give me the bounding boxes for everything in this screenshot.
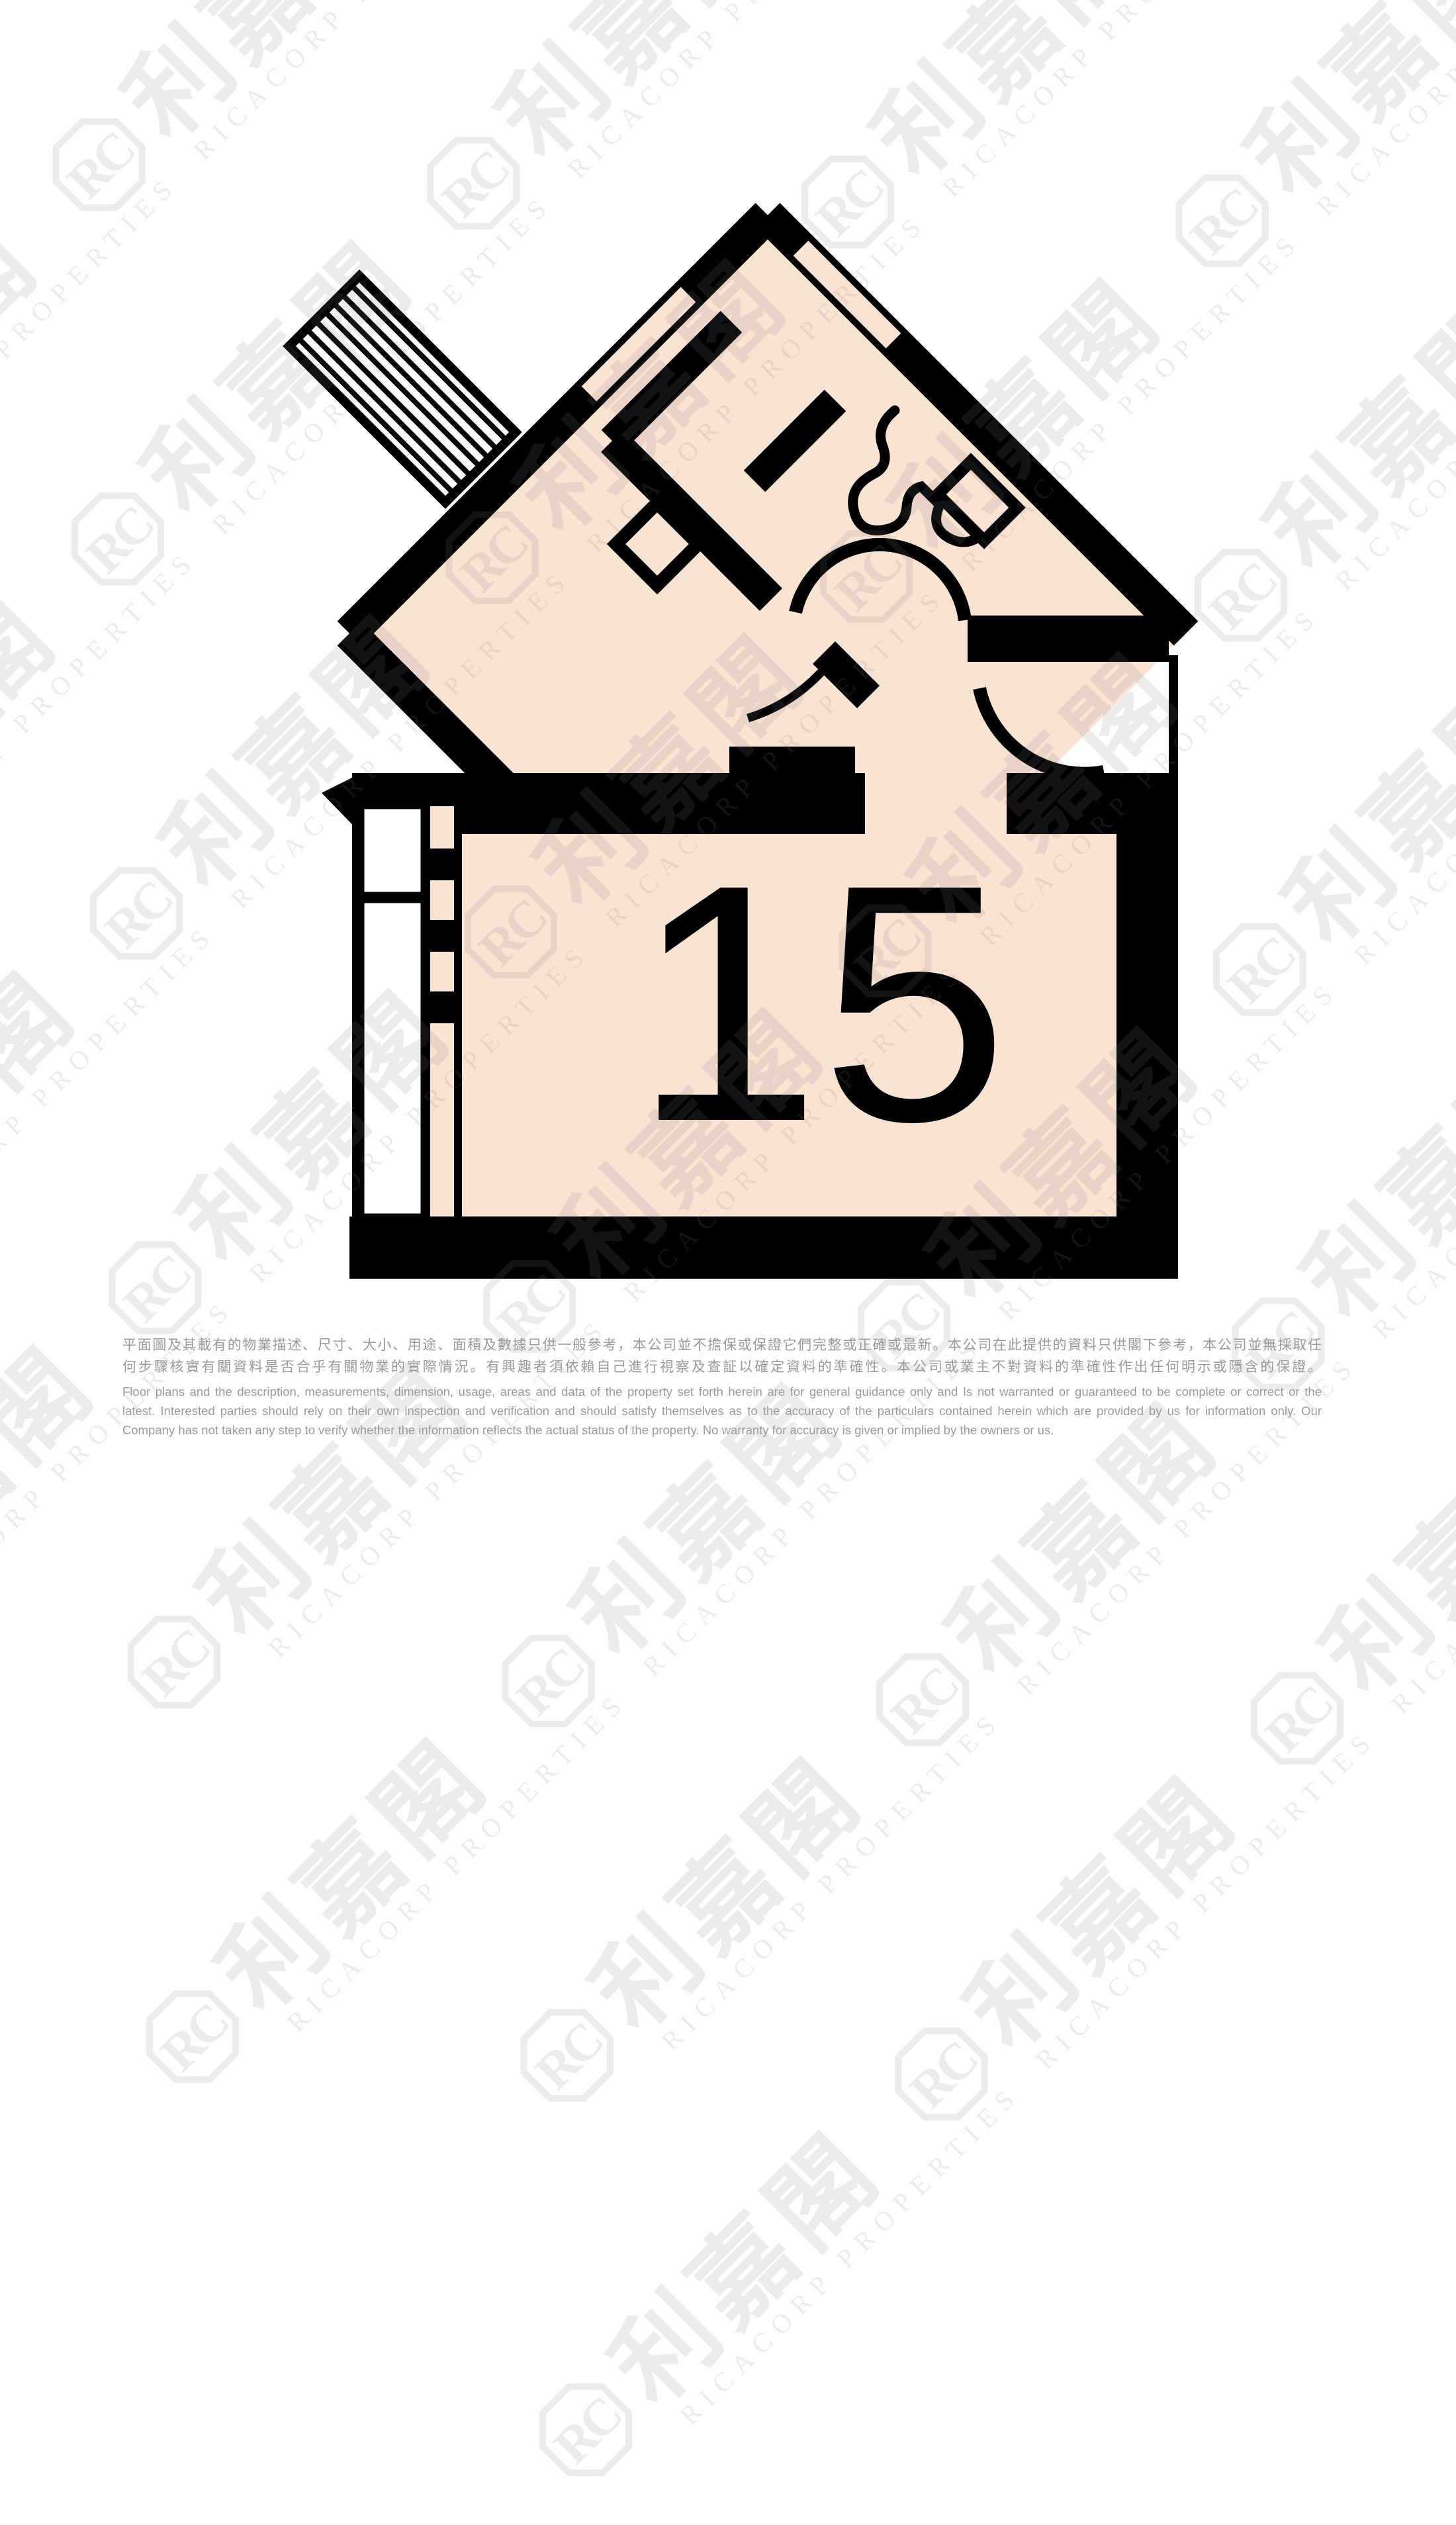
svg-text:RC: RC <box>506 1638 594 1726</box>
watermark-tile: RC利嘉閣RICACORP PROPERTIES <box>124 1616 634 2125</box>
ac-louver <box>289 276 516 502</box>
bay-divider-east <box>454 806 462 1217</box>
disclaimer-line: 平面圖及其載有的物業描述、尺寸、大小、用途、面積及數據只供一般參考，本公司並不擔… <box>122 1334 1322 1356</box>
ricacorp-logo-icon: RC <box>1232 1653 1363 1784</box>
disclaimer-line: latest. Interested parties should rely o… <box>122 1401 1322 1420</box>
watermark-brand: RC利嘉閣 <box>518 2009 1007 2498</box>
svg-text:RC: RC <box>131 1619 219 1707</box>
watermark-brand-cjk: 利嘉閣 <box>202 1723 506 2027</box>
ricacorp-logo-icon: RC <box>520 2364 651 2495</box>
watermark-brand-cjk: 利嘉閣 <box>576 1742 881 2046</box>
floorplan-page: { "floor_plan": { "unit_number": "15", "… <box>0 0 1456 1456</box>
disclaimer-chinese: 平面圖及其載有的物業描述、尺寸、大小、用途、面積及數據只供一般參考，本公司並不擔… <box>122 1334 1322 1378</box>
svg-text:RC: RC <box>524 2012 612 2100</box>
watermark-brand: RC利嘉閣 <box>873 1653 1362 2142</box>
wall-lower-south <box>349 1217 1178 1279</box>
svg-text:RC: RC <box>543 2387 631 2475</box>
ricacorp-logo-icon: RC <box>857 1634 988 1765</box>
wall-bathroom-south <box>968 616 1169 662</box>
disclaimer-english: Floor plans and the description, measure… <box>122 1382 1322 1440</box>
svg-text:RC: RC <box>880 1657 968 1745</box>
watermark-brand-en: RICACORP PROPERTIES <box>674 2078 1027 2431</box>
ricacorp-logo-icon: RC <box>876 2009 1007 2140</box>
disclaimer-line: Company has not taken any step to verify… <box>122 1420 1322 1440</box>
watermark-tile: RC利嘉閣RICACORP PROPERTIES <box>499 1634 1009 2144</box>
window-mullion <box>428 991 457 1023</box>
disclaimer-line: 何步驟核實有關資料是否合乎有關物業的實際情況。有興趣者須依賴自己進行視察及查証以… <box>122 1356 1322 1378</box>
watermark-tile: RC利嘉閣RICACORP PROPERTIES <box>518 2009 1027 2518</box>
watermark-brand: RC利嘉閣 <box>124 1616 614 2105</box>
bay-compartment-lower <box>361 900 424 1217</box>
ricacorp-logo-icon: RC <box>502 1990 633 2121</box>
window-mullion <box>428 849 457 880</box>
watermark-brand-en: RICACORP PROPERTIES <box>1029 1722 1383 2076</box>
svg-text:RC: RC <box>150 1994 238 2082</box>
watermark-brand-cjk: 利嘉閣 <box>951 1761 1255 2065</box>
svg-text:RC: RC <box>1254 1675 1342 1763</box>
disclaimer-line: Floor plans and the description, measure… <box>122 1382 1322 1401</box>
wall-entrance-right <box>1007 773 1178 834</box>
watermark-tile: RC利嘉閣RICACORP PROPERTIES <box>873 1653 1383 2162</box>
watermark-brand-en: RICACORP PROPERTIES <box>655 1704 1009 2057</box>
left-bay <box>361 806 462 1217</box>
watermark-brand: RC利嘉閣 <box>499 1634 988 2123</box>
watermark-brand-en: RICACORP PROPERTIES <box>281 1684 634 2038</box>
wall-lower-east <box>1116 834 1178 1279</box>
watermark-brand-cjk: 利嘉閣 <box>595 2116 899 2420</box>
ricacorp-logo-icon: RC <box>482 1616 614 1747</box>
disclaimer: 平面圖及其載有的物業描述、尺寸、大小、用途、面積及數據只供一般參考，本公司並不擔… <box>122 1334 1322 1440</box>
window-mullion <box>428 920 457 952</box>
bay-compartment-upper <box>361 806 424 895</box>
ricacorp-logo-icon: RC <box>109 1596 240 1727</box>
unit-number: 15 <box>633 815 1008 1192</box>
floor-plan-svg: 15 <box>0 0 1456 1456</box>
svg-text:RC: RC <box>899 2031 987 2119</box>
ricacorp-logo-icon: RC <box>127 1971 258 2102</box>
